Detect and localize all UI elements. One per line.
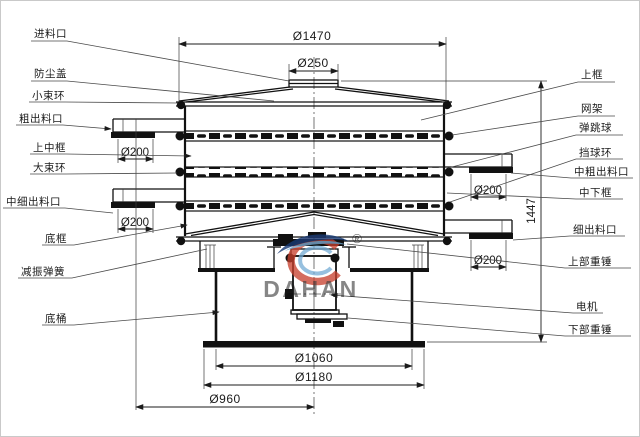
label-fine-outlet: 细出料口 xyxy=(573,223,617,236)
leader-fine-outlet xyxy=(513,236,625,240)
leader-upper-middle-frame xyxy=(30,154,191,156)
label-upper-middle-frame: 上中框 xyxy=(33,141,66,154)
leader-dust-cover xyxy=(31,81,274,101)
leader-small-clamp-ring xyxy=(29,102,178,103)
dim-total-height: 1447 xyxy=(526,198,538,224)
leader-mid-fine-outlet xyxy=(3,208,113,213)
label-ball-stop-ring: 挡球环 xyxy=(579,146,612,159)
label-upper-weight: 上部重锤 xyxy=(568,255,612,268)
dim-outlet-left-upper: Ø200 xyxy=(121,147,149,159)
logo-lightblue-swirl-icon xyxy=(300,248,331,274)
label-base-barrel: 底桶 xyxy=(45,312,67,325)
label-mid-coarse-outlet: 中粗出料口 xyxy=(574,165,629,178)
clamp-band-2 xyxy=(176,167,454,177)
dim-inlet-diameter: Ø250 xyxy=(297,56,328,70)
dim-base-diameter: Ø1180 xyxy=(295,370,333,384)
clamp-band-1 xyxy=(176,131,454,141)
label-large-clamp-ring: 大束环 xyxy=(33,161,66,174)
logo-registered-mark: ® xyxy=(352,231,362,246)
technical-drawing-canvas: Ø1470 Ø250 Ø200 Ø200 Ø200 Ø200 1447 Ø106… xyxy=(0,0,640,437)
label-motor: 电机 xyxy=(576,300,598,313)
sieve-machine-diagram: Ø1470 Ø250 Ø200 Ø200 Ø200 Ø200 1447 Ø106… xyxy=(1,1,640,437)
label-coarse-outlet: 粗出料口 xyxy=(19,112,63,125)
dim-outlet-left-lower: Ø200 xyxy=(121,217,149,229)
lower-weight-part xyxy=(291,310,347,327)
label-mesh-frame: 网架 xyxy=(581,103,603,115)
machine-body xyxy=(176,80,454,348)
label-bottom-frame: 底框 xyxy=(45,232,67,245)
logo-brand-text: DAHAN xyxy=(263,276,359,302)
label-lower-weight: 下部重锤 xyxy=(568,323,612,336)
clamp-band-3 xyxy=(176,201,454,211)
vibration-table xyxy=(198,247,429,272)
leader-motor xyxy=(331,295,603,313)
damping-spring-right xyxy=(412,241,428,268)
label-damping-spring: 减振弹簧 xyxy=(21,265,65,278)
label-dust-cover: 防尘盖 xyxy=(34,67,67,80)
leader-base-barrel xyxy=(42,312,219,325)
label-mid-fine-outlet: 中细出料口 xyxy=(6,195,61,208)
label-upper-frame: 上框 xyxy=(581,68,603,81)
dim-barrel-diameter: Ø1060 xyxy=(295,351,334,365)
base-flange xyxy=(203,341,425,348)
leader-feed-inlet xyxy=(31,41,289,81)
outlet-right-lower xyxy=(444,220,513,239)
label-mid-lower-frame: 中下框 xyxy=(579,186,612,199)
outlet-right-upper xyxy=(444,154,513,173)
label-bouncing-ball: 弹跳球 xyxy=(579,121,612,134)
dim-top-diameter: Ø1470 xyxy=(293,29,332,43)
outlet-left-upper xyxy=(111,119,185,138)
dim-outlet-circle: Ø960 xyxy=(209,392,240,406)
label-feed-inlet: 进料口 xyxy=(34,27,67,40)
damping-spring-left xyxy=(200,241,216,268)
label-small-clamp-ring: 小束环 xyxy=(32,90,65,102)
leader-coarse-outlet xyxy=(16,125,111,129)
outlet-left-lower xyxy=(111,189,185,208)
